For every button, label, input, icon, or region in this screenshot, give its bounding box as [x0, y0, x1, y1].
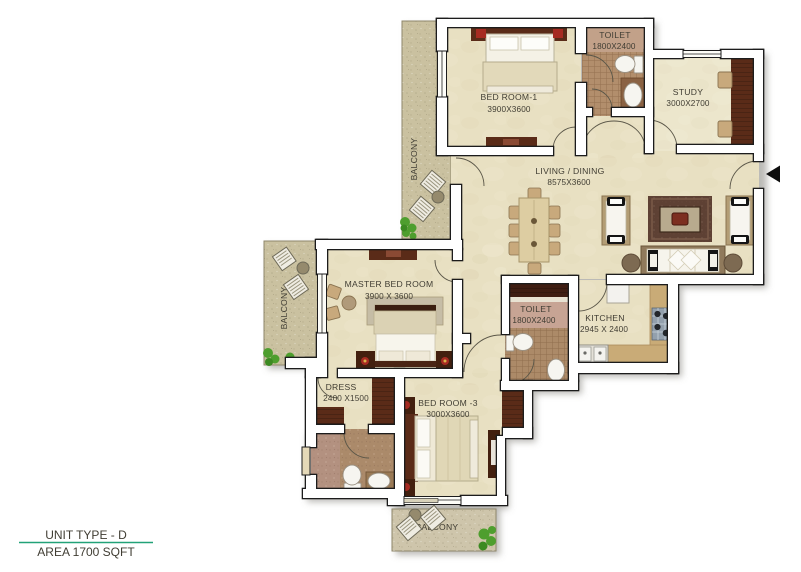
svg-text:UNIT TYPE - D: UNIT TYPE - D	[45, 528, 127, 542]
svg-text:BED ROOM-1: BED ROOM-1	[481, 92, 538, 102]
svg-text:8575X3600: 8575X3600	[547, 178, 591, 187]
svg-text:BALCONY: BALCONY	[409, 138, 419, 181]
svg-text:MASTER BED ROOM: MASTER BED ROOM	[345, 279, 434, 289]
svg-text:DRESS: DRESS	[326, 382, 357, 392]
svg-text:AREA 1700 SQFT: AREA 1700 SQFT	[37, 545, 135, 559]
svg-text:BED ROOM -3: BED ROOM -3	[418, 398, 478, 408]
svg-text:BALCONY: BALCONY	[279, 287, 289, 330]
svg-text:STUDY: STUDY	[673, 87, 703, 97]
svg-text:3000X3600: 3000X3600	[426, 410, 470, 419]
svg-text:3900 X 3600: 3900 X 3600	[365, 292, 413, 301]
svg-text:TOILET: TOILET	[599, 30, 631, 40]
svg-text:1800X2400: 1800X2400	[512, 316, 556, 325]
svg-text:3900X3600: 3900X3600	[487, 105, 531, 114]
svg-text:2945 X 2400: 2945 X 2400	[580, 325, 628, 334]
svg-text:1800X2400: 1800X2400	[592, 42, 636, 51]
svg-text:3000X2700: 3000X2700	[666, 99, 710, 108]
svg-text:2400 X1500: 2400 X1500	[323, 394, 369, 403]
svg-text:LIVING / DINING: LIVING / DINING	[535, 166, 604, 176]
svg-text:KITCHEN: KITCHEN	[585, 313, 624, 323]
svg-text:TOILET: TOILET	[520, 304, 552, 314]
